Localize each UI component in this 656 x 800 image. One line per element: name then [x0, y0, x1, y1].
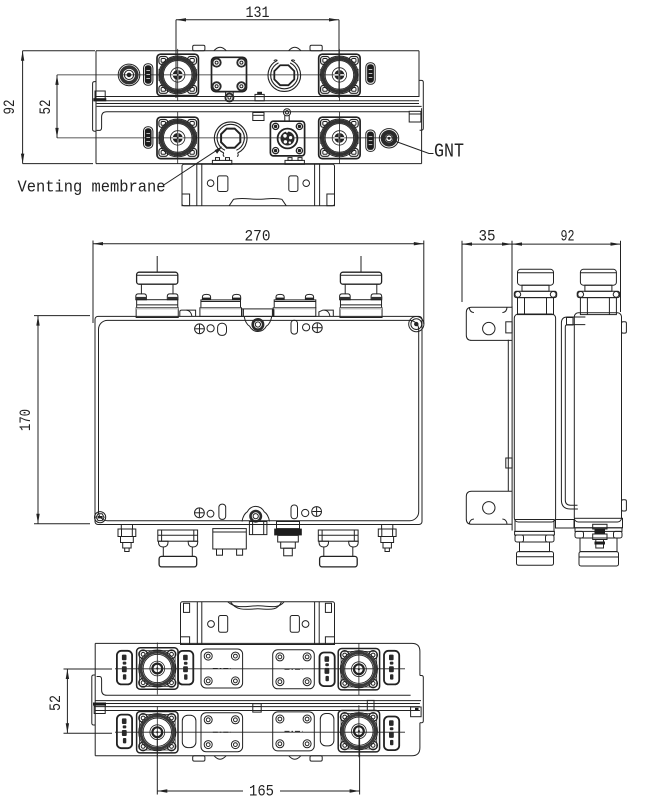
svg-text:GNT: GNT: [434, 141, 464, 163]
svg-text:52: 52: [37, 100, 55, 115]
svg-text:Venting membrane: Venting membrane: [18, 178, 166, 197]
svg-text:92: 92: [1, 100, 19, 115]
svg-text:165: 165: [249, 783, 274, 800]
svg-text:35: 35: [479, 228, 496, 246]
svg-text:92: 92: [561, 228, 575, 246]
svg-text:131: 131: [246, 4, 270, 22]
svg-text:52: 52: [47, 695, 65, 711]
svg-text:270: 270: [245, 228, 271, 246]
svg-text:170: 170: [17, 409, 35, 431]
